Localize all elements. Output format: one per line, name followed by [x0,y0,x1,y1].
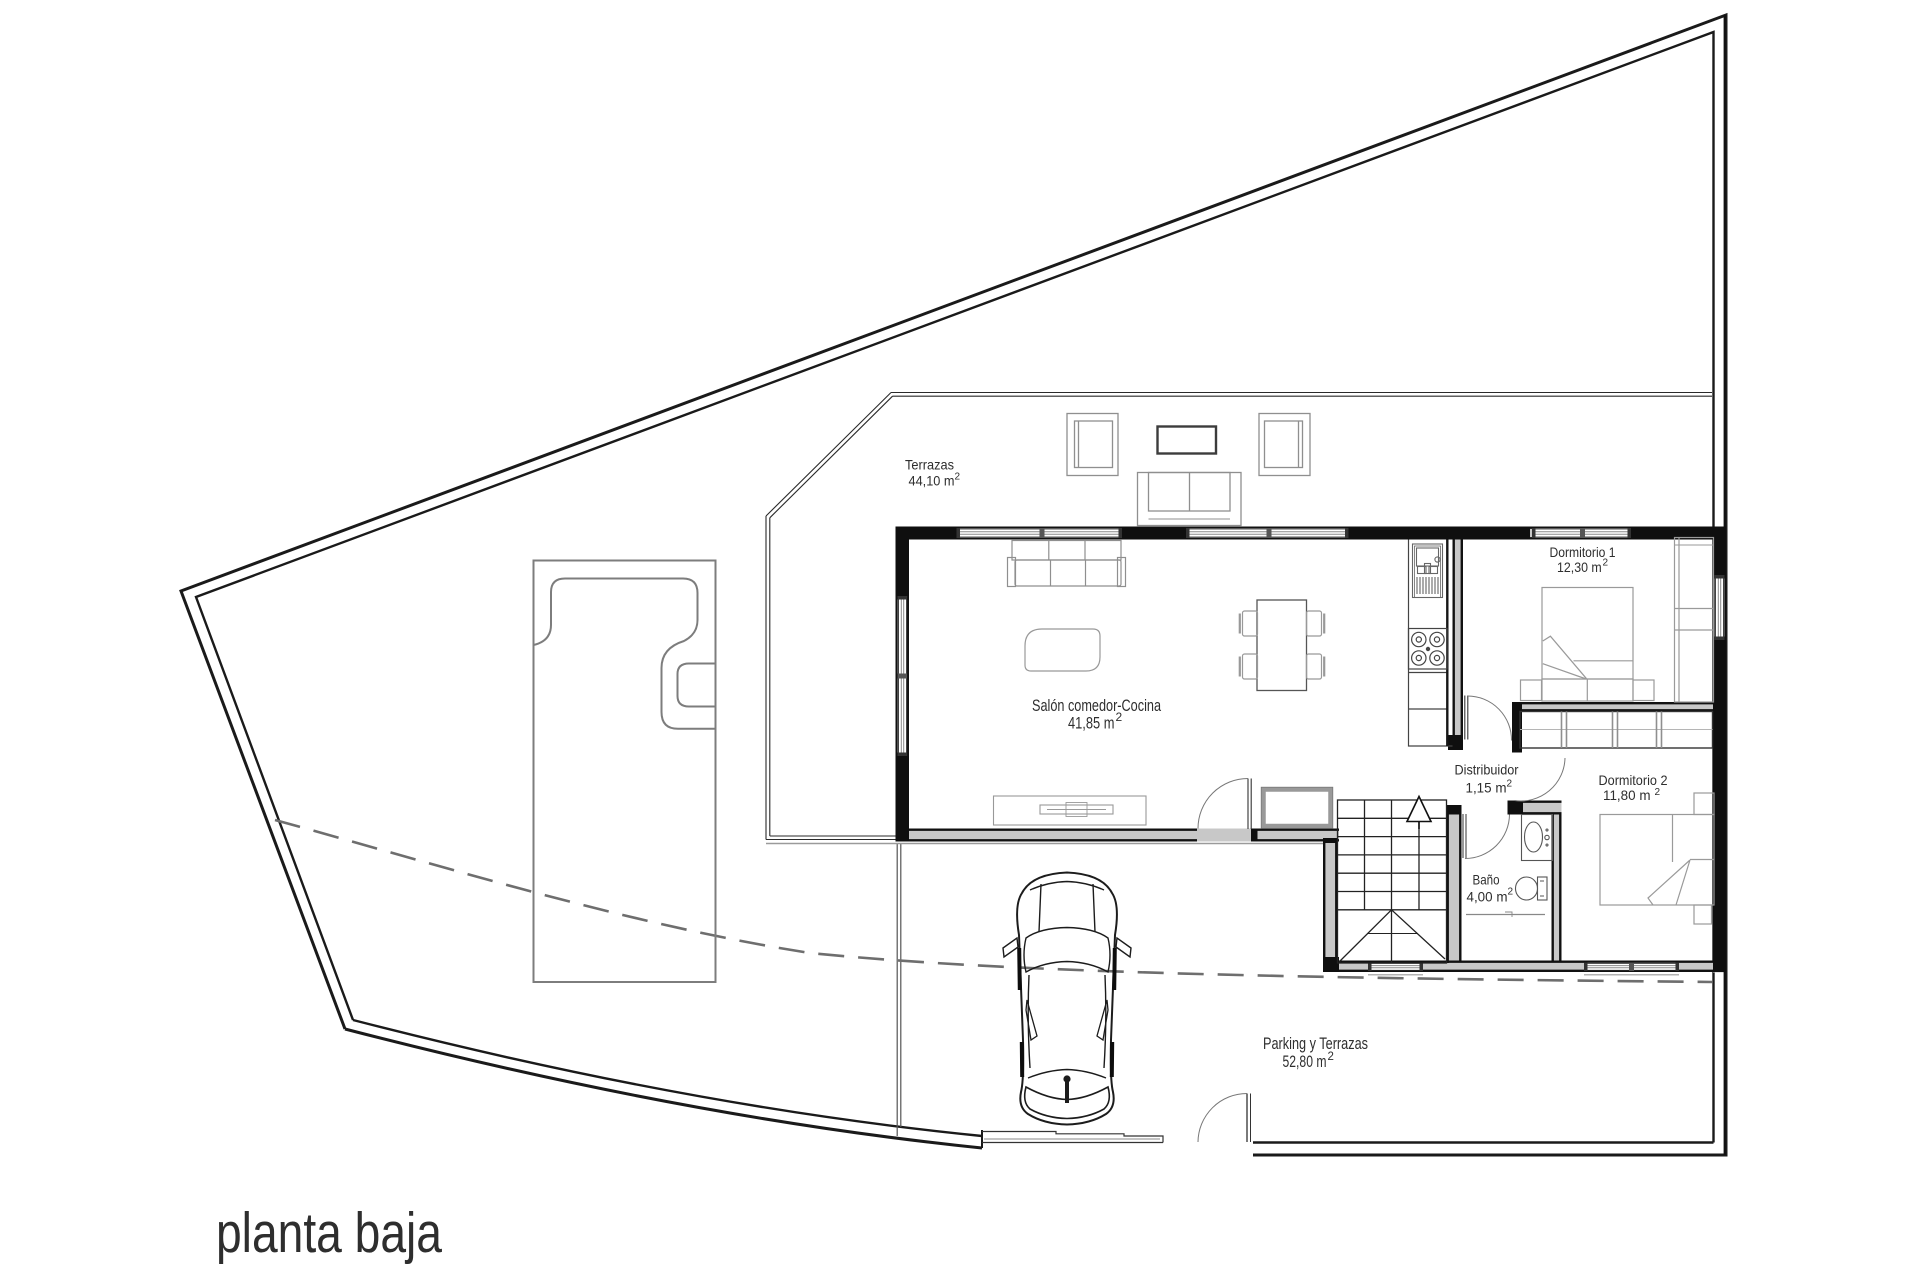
svg-text:2: 2 [1328,1051,1334,1063]
svg-text:11,80 m: 11,80 m [1603,787,1651,803]
svg-text:Parking y Terrazas: Parking y Terrazas [1263,1035,1368,1053]
svg-text:2: 2 [955,472,961,483]
svg-text:1,15 m: 1,15 m [1466,780,1507,796]
svg-text:Distribuidor: Distribuidor [1455,761,1519,777]
svg-text:2: 2 [1655,787,1661,798]
svg-text:2: 2 [1603,558,1609,569]
svg-text:2: 2 [1508,887,1514,898]
svg-text:Terrazas: Terrazas [905,457,954,473]
svg-text:Salón comedor-Cocina: Salón comedor-Cocina [1032,696,1161,715]
svg-text:planta baja: planta baja [216,1201,442,1265]
svg-text:4,00 m: 4,00 m [1467,889,1508,905]
svg-text:44,10 m: 44,10 m [909,473,955,489]
svg-text:Baño: Baño [1473,872,1500,888]
svg-text:2: 2 [1507,779,1513,790]
svg-text:41,85 m: 41,85 m [1068,713,1115,732]
svg-text:52,80 m: 52,80 m [1283,1053,1327,1071]
svg-text:Dormitorio 2: Dormitorio 2 [1599,772,1668,788]
svg-text:2: 2 [1116,710,1123,724]
svg-text:12,30 m: 12,30 m [1557,559,1602,575]
